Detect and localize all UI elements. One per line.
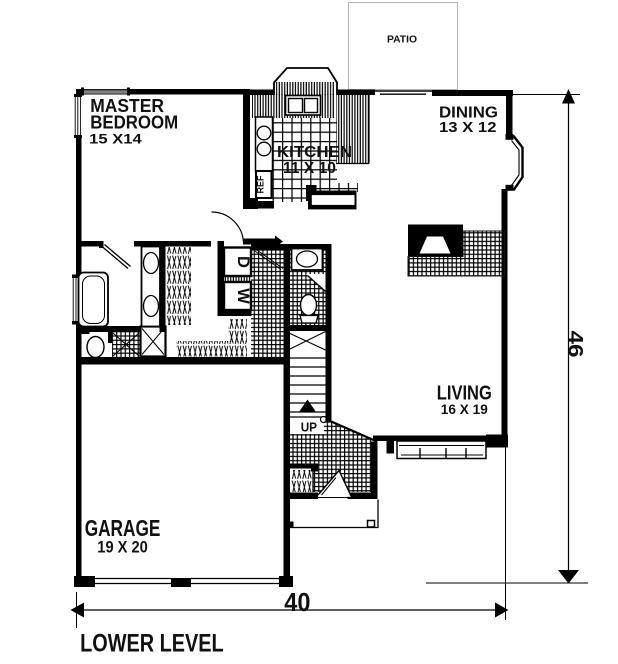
svg-text:19 X 20: 19 X 20 (97, 538, 148, 557)
svg-text:46: 46 (564, 331, 587, 358)
svg-text:PATIO: PATIO (387, 35, 417, 46)
svg-text:UP: UP (301, 420, 318, 435)
svg-text:11 X 10: 11 X 10 (283, 160, 336, 177)
svg-text:W: W (234, 288, 252, 304)
svg-text:15 X14: 15 X14 (89, 131, 142, 147)
svg-text:BEDROOM: BEDROOM (90, 112, 178, 132)
svg-text:16 X 19: 16 X 19 (441, 401, 488, 417)
svg-text:D: D (234, 256, 252, 268)
svg-text:13 X 12: 13 X 12 (439, 120, 497, 136)
svg-text:40: 40 (284, 589, 310, 617)
svg-text:LOWER LEVEL: LOWER LEVEL (80, 629, 224, 657)
svg-text:KITCHEN: KITCHEN (277, 144, 352, 161)
svg-text:REF: REF (256, 175, 266, 194)
